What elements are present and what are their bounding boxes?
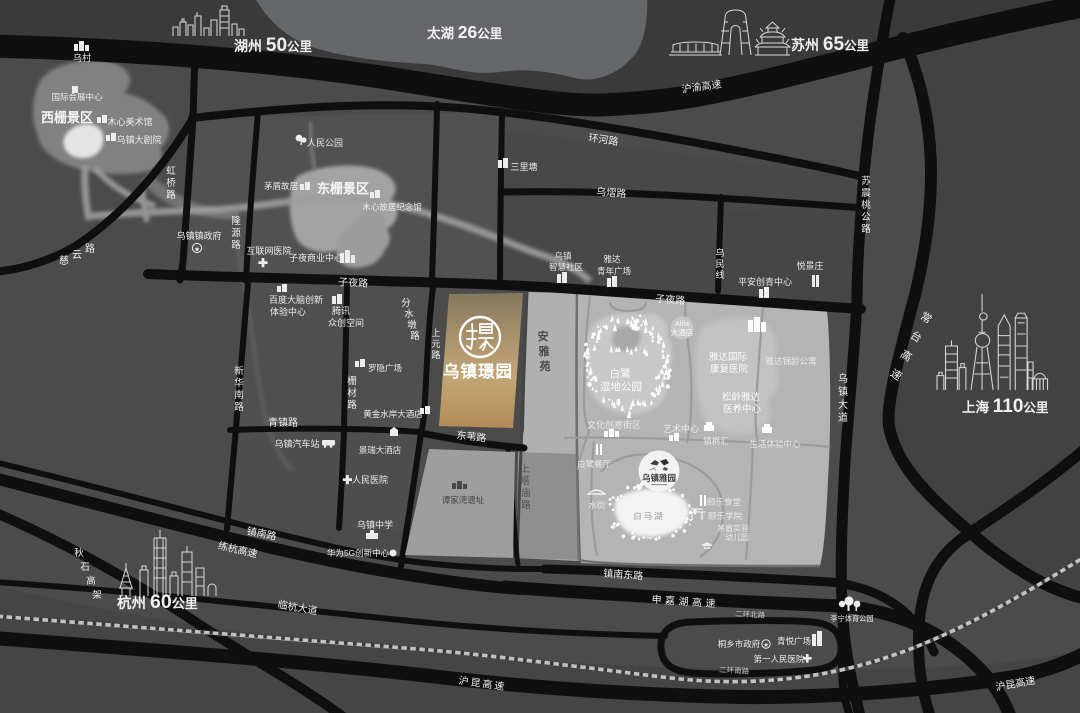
svg-text:众创空间: 众创空间 (328, 317, 364, 328)
svg-text:三里塘: 三里塘 (510, 161, 537, 172)
svg-text:Alila: Alila (675, 319, 690, 328)
svg-text:青年广场: 青年广场 (597, 266, 631, 276)
svg-text:颐乐学院: 颐乐学院 (708, 511, 743, 521)
svg-text:木心故居纪念馆: 木心故居纪念馆 (362, 202, 422, 212)
svg-text:隆源路: 隆源路 (231, 215, 241, 251)
svg-text:景瑞大酒店: 景瑞大酒店 (359, 445, 402, 455)
svg-text:苏震桃公路: 苏震桃公路 (861, 175, 871, 235)
svg-text:互联网医院: 互联网医院 (246, 245, 291, 256)
svg-text:乌镇大剧院: 乌镇大剧院 (116, 134, 161, 145)
svg-text:谭家湾遗址: 谭家湾遗址 (442, 495, 485, 505)
svg-text:子夜商业中心: 子夜商业中心 (289, 252, 343, 263)
svg-text:乌镇汽车站: 乌镇汽车站 (274, 438, 319, 449)
svg-text:人民公园: 人民公园 (307, 138, 343, 148)
svg-text:黄金水岸大酒店: 黄金水岸大酒店 (363, 409, 423, 419)
svg-text:★: ★ (194, 245, 200, 253)
svg-text:二环南路: 二环南路 (719, 664, 750, 676)
svg-text:乌村: 乌村 (73, 52, 91, 63)
svg-text:腾讯: 腾讯 (332, 305, 350, 316)
svg-text:乌镇雅园: 乌镇雅园 (642, 473, 676, 483)
svg-text:桐乡市政府: 桐乡市政府 (718, 639, 761, 649)
svg-text:茅盾实验: 茅盾实验 (717, 523, 749, 533)
svg-text:乌民线: 乌民线 (715, 247, 724, 280)
svg-text:乌镇: 乌镇 (554, 251, 572, 261)
svg-text:白鹭: 白鹭 (610, 367, 631, 380)
svg-text:第一人民医院: 第一人民医院 (753, 654, 805, 664)
svg-text:体验中心: 体验中心 (270, 306, 306, 317)
svg-text:乌镇璟园: 乌镇璟园 (443, 361, 513, 381)
svg-text:栅材路: 栅材路 (347, 375, 357, 411)
svg-text:水街: 水街 (588, 500, 606, 510)
svg-text:青镇路: 青镇路 (268, 416, 298, 429)
svg-text:大酒店: 大酒店 (671, 327, 694, 337)
svg-text:雅达: 雅达 (603, 254, 621, 264)
svg-text:医养中心: 医养中心 (723, 403, 762, 415)
svg-text:李宁体育公园: 李宁体育公园 (830, 614, 873, 623)
svg-text:二环北路: 二环北路 (735, 608, 766, 620)
svg-text:国际会展中心: 国际会展中心 (51, 92, 103, 102)
svg-text:乌镇镇政府: 乌镇镇政府 (176, 230, 221, 241)
svg-text:松龄雅达: 松龄雅达 (722, 391, 761, 403)
svg-text:人民医院: 人民医院 (352, 474, 388, 485)
svg-text:上元路: 上元路 (431, 328, 440, 360)
svg-text:雅达国际: 雅达国际 (709, 351, 748, 363)
svg-text:幼儿园: 幼儿园 (725, 532, 749, 542)
svg-text:乌镇中学: 乌镇中学 (357, 519, 393, 530)
svg-text:西栅景区: 西栅景区 (41, 110, 93, 125)
svg-text:平安创青中心: 平安创青中心 (738, 276, 792, 287)
svg-text:文化创意街区: 文化创意街区 (587, 419, 641, 430)
svg-text:白马湖: 白马湖 (633, 511, 665, 521)
svg-text:颐乐食堂: 颐乐食堂 (707, 497, 741, 507)
svg-text:东栅景区: 东栅景区 (317, 181, 369, 196)
svg-text:艺术中心: 艺术中心 (663, 423, 699, 434)
svg-text:白鹭餐厅: 白鹭餐厅 (577, 459, 612, 469)
svg-text:百度大脑创新: 百度大脑创新 (269, 294, 323, 305)
svg-text:青悦广场: 青悦广场 (777, 636, 811, 646)
svg-text:康复医院: 康复医院 (710, 363, 749, 375)
svg-text:木心美术馆: 木心美术馆 (107, 116, 152, 127)
svg-text:智慧社区: 智慧社区 (549, 262, 584, 272)
svg-text:悦景庄: 悦景庄 (796, 260, 823, 271)
svg-text:华为5G创新中心: 华为5G创新中心 (327, 548, 390, 558)
svg-text:罗隐广场: 罗隐广场 (368, 363, 402, 373)
svg-text:湿地公园: 湿地公园 (600, 380, 642, 393)
svg-text:虹桥路: 虹桥路 (166, 166, 176, 201)
svg-text:镇栴汇: 镇栴汇 (703, 436, 729, 446)
svg-text:★: ★ (763, 641, 769, 649)
svg-text:生活体验中心: 生活体验中心 (749, 439, 801, 449)
svg-text:雅达锦龄公寓: 雅达锦龄公寓 (765, 356, 816, 366)
svg-text:上塔庙路: 上塔庙路 (520, 464, 531, 511)
svg-text:茅盾故居: 茅盾故居 (264, 181, 298, 191)
